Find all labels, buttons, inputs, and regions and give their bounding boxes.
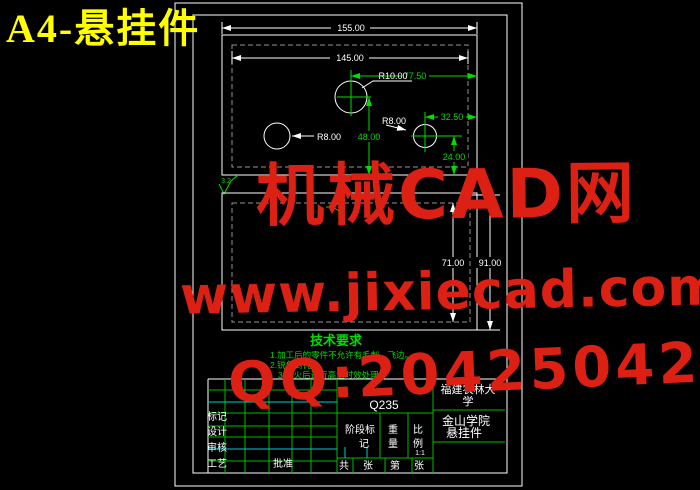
label-r10-text: R10.00: [378, 71, 407, 81]
scale-value: 1:1: [415, 450, 425, 457]
weight-label: 量: [388, 438, 398, 450]
radius-labels: R10.00 R8.00 R8.00: [292, 71, 412, 142]
roughness-value-text: 3.2: [221, 178, 231, 185]
dim-145-text: 145.00: [336, 53, 364, 63]
row-label-process: 工艺: [207, 458, 227, 470]
dim-hole-offset: 32.50: [425, 112, 477, 122]
sheet-no-label: 第: [390, 459, 400, 472]
sheet-total-label: 共: [339, 460, 349, 472]
drawing-sheet: 155.00 145.00 77.50 32.50: [0, 0, 700, 490]
dim-inner-width: 145.00: [232, 51, 468, 64]
row-label-check: 审核: [207, 441, 227, 454]
scale-label: 比: [413, 424, 423, 436]
approve-label: 批准: [273, 457, 293, 470]
dim-right-offset: 77.50: [351, 71, 477, 81]
sheet-unit: 张: [363, 460, 373, 472]
roughness-symbol: 3.2: [219, 175, 238, 194]
label-r8-right-text: R8.00: [382, 116, 406, 126]
label-r8-left-text: R8.00: [317, 132, 341, 142]
dim-overall-width: 155.00: [222, 22, 477, 34]
sheet-unit: 张: [414, 460, 424, 472]
weight-label: 重: [388, 423, 398, 436]
stage-label: 记: [359, 438, 369, 450]
cad-application-canvas: 155.00 145.00 77.50 32.50: [0, 0, 700, 490]
part-name: 悬挂件: [446, 426, 482, 440]
page-title: A4-悬挂件: [6, 0, 200, 54]
watermark-url-text: www.jixiecad.com: [180, 261, 700, 322]
watermark-brand-text: 机械CAD网: [256, 160, 638, 231]
hole-r8-left-circle: [264, 123, 290, 149]
row-label-mark: 标记: [207, 411, 227, 423]
stage-label: 阶段标: [345, 423, 375, 436]
dim-48-text: 48.00: [358, 132, 381, 142]
row-label-design: 设计: [207, 425, 227, 438]
hidden-outline-top-view: [232, 45, 468, 167]
dim-32-text: 32.50: [441, 112, 464, 122]
dim-155-text: 155.00: [337, 23, 365, 33]
scale-label: 例: [413, 437, 423, 450]
